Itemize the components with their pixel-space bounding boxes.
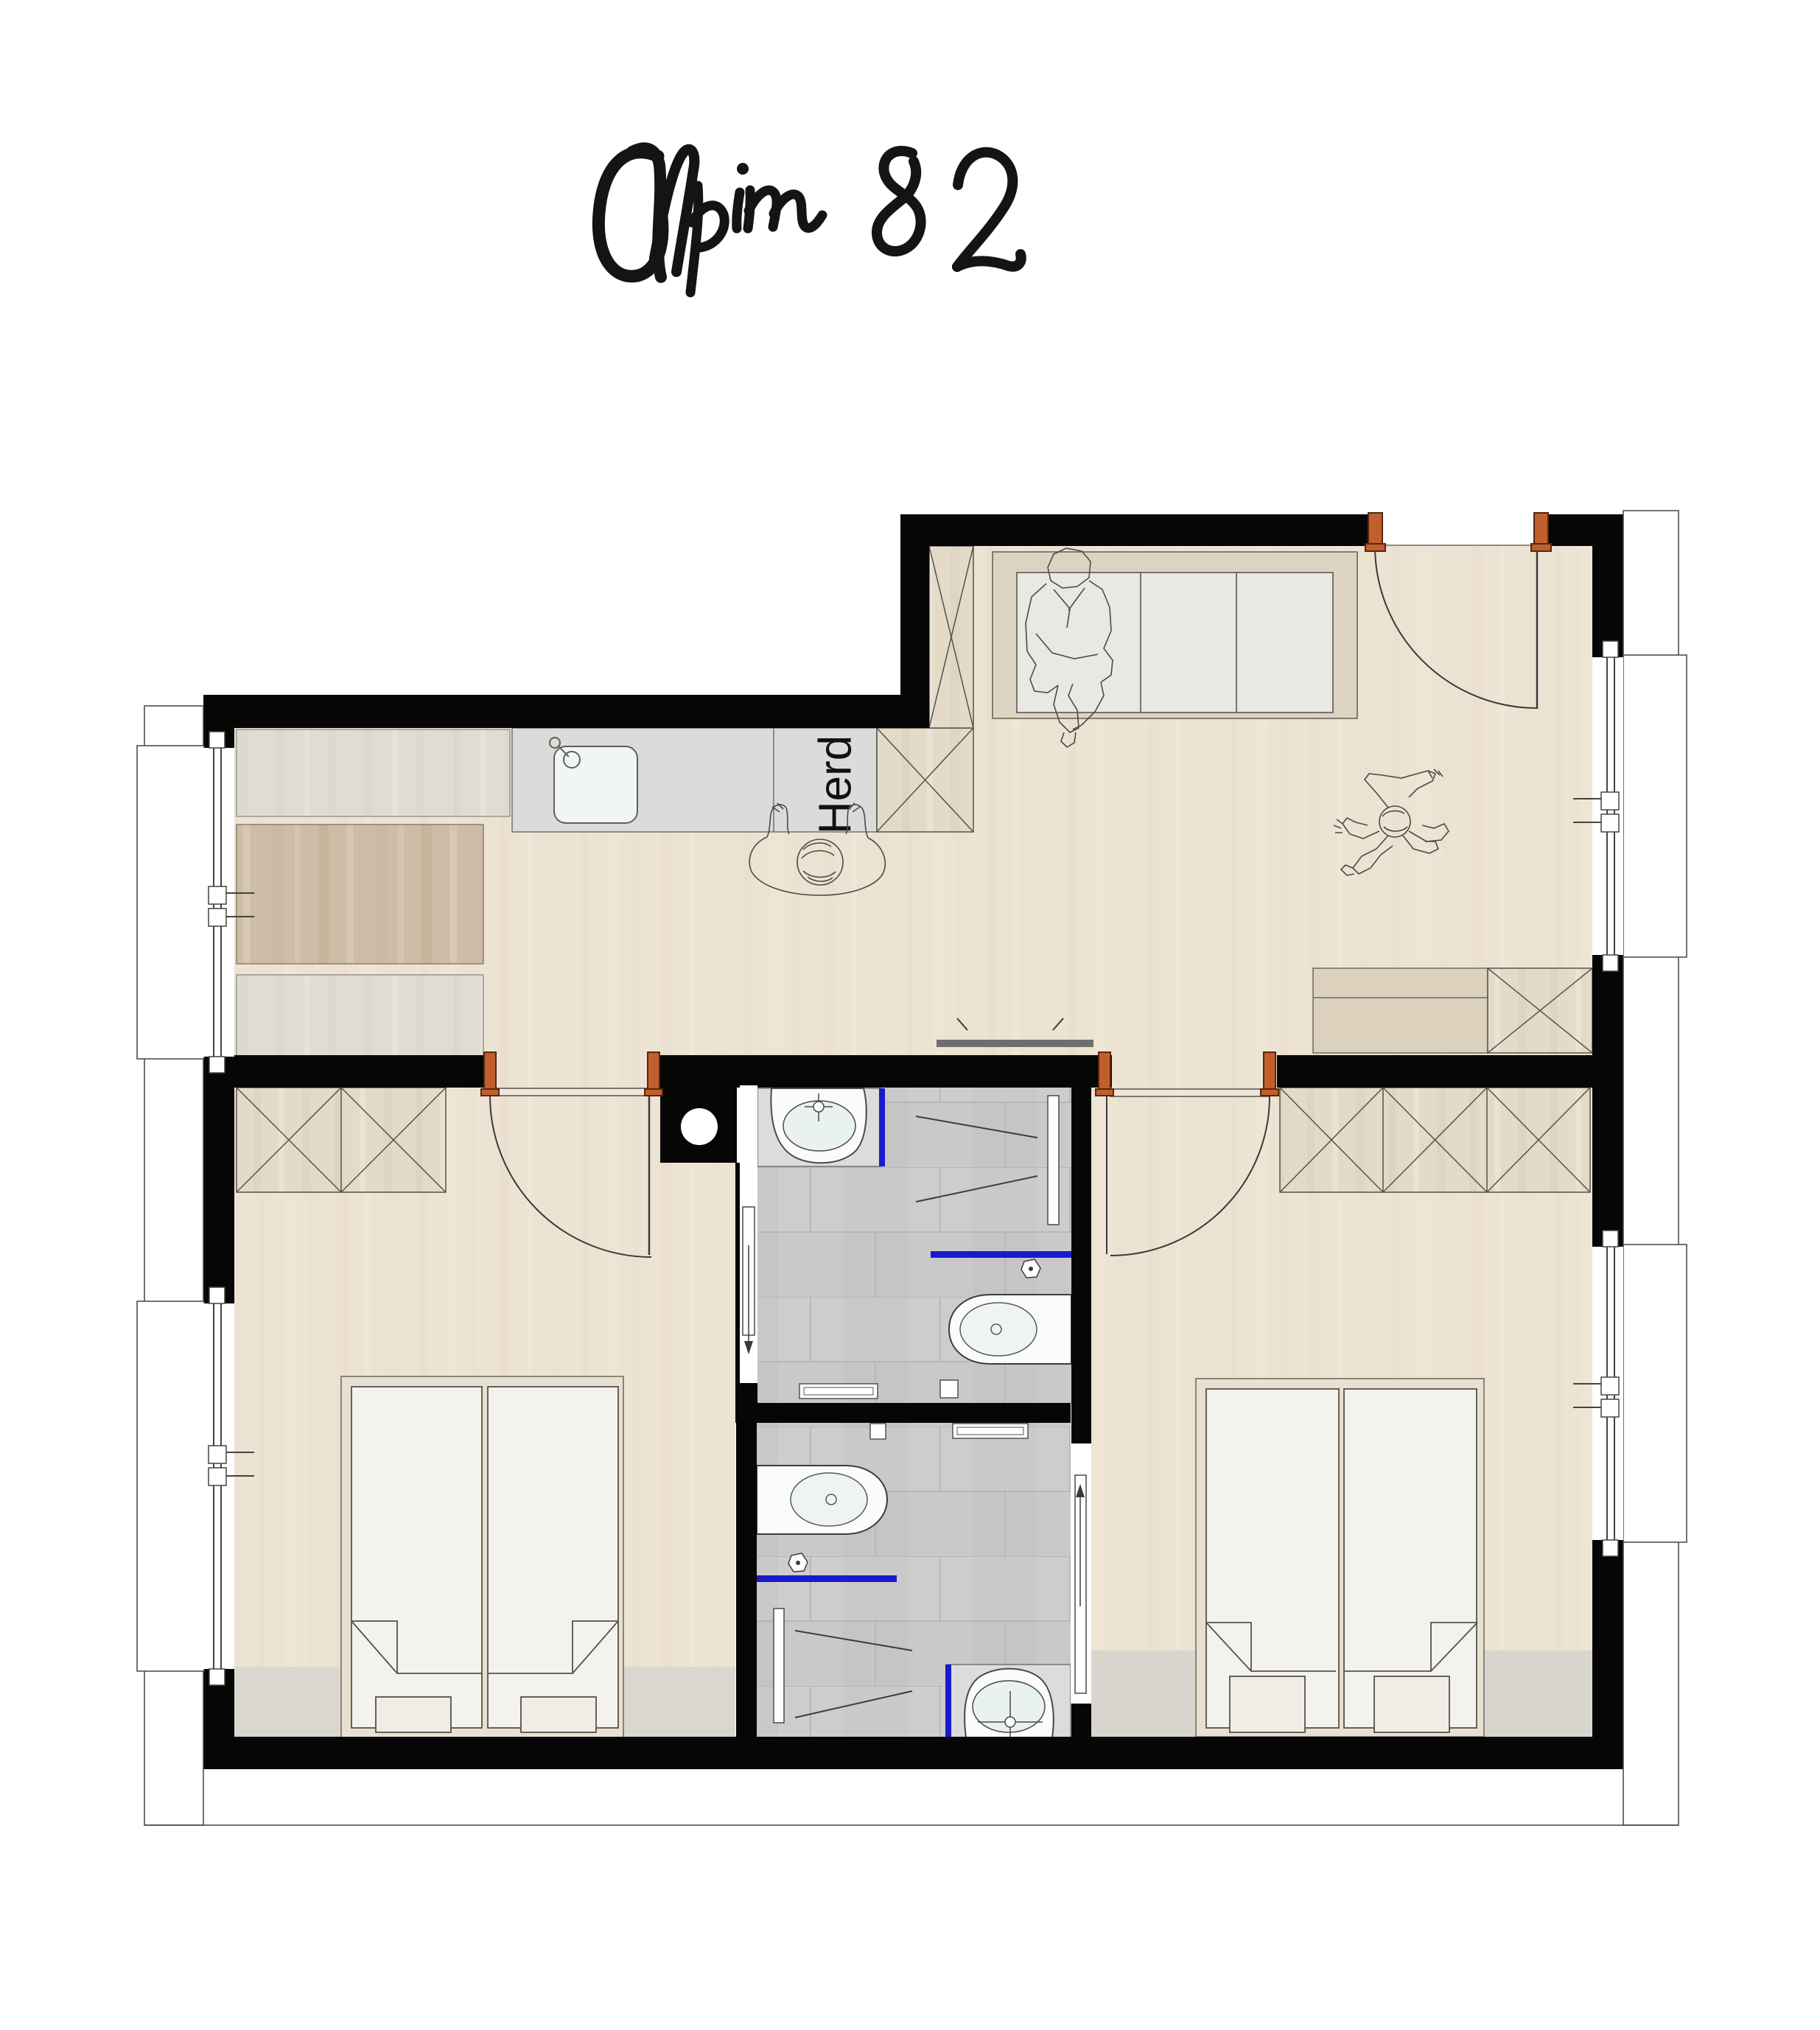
svg-text:Herd: Herd bbox=[810, 735, 861, 834]
